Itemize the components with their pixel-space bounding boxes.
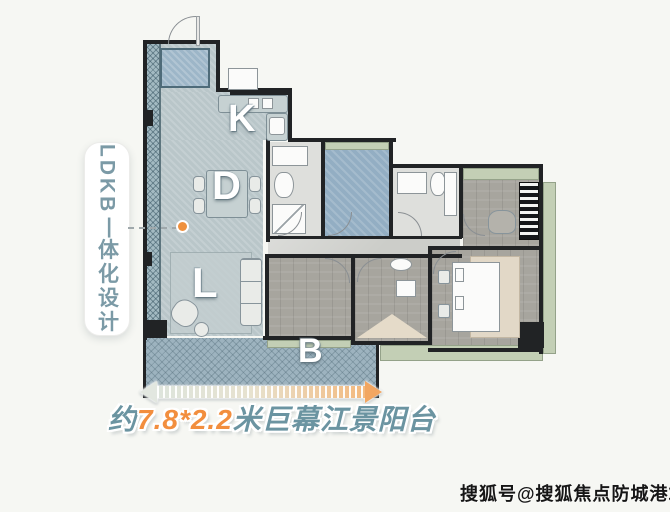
window-wall-strip	[147, 44, 161, 336]
wall-bedroom2-master	[428, 246, 432, 341]
bath2-shower	[444, 172, 457, 216]
wall-bath2-right-bedroom	[459, 164, 463, 238]
dimension-prefix: 约	[108, 404, 137, 435]
bedroom2-stool	[390, 258, 412, 271]
bath1-sink	[272, 146, 308, 166]
callout-dashed-line	[128, 227, 178, 229]
floor-plan-page: K D L B LDKB一体化设计 约7.8*2.2米巨幕江景阳台 搜狐号@搜狐…	[0, 0, 670, 512]
wall-hall-south	[266, 254, 462, 258]
balcony-label: B	[298, 334, 323, 368]
right-bedroom-sill	[463, 168, 539, 180]
kitchen-flue-box	[228, 68, 258, 90]
wall-bath2-top	[392, 164, 463, 168]
dining-chair-2	[193, 198, 205, 214]
pier-master-right	[518, 322, 544, 348]
side-callout-text: LDKB一体化设计	[97, 144, 118, 334]
wardrobe-grille	[519, 182, 539, 240]
wall-living-bedroom1	[265, 254, 269, 340]
dining-label: D	[212, 166, 241, 206]
balcony-dimension-text: 约7.8*2.2米巨幕江景阳台	[108, 398, 436, 438]
pier-left-2	[143, 252, 152, 266]
wall-master-bottom	[428, 348, 543, 352]
entry-door-arc	[168, 16, 196, 44]
dimension-suffix: 米巨幕江景阳台	[233, 404, 436, 435]
watermark-text: 搜狐号@搜狐焦点防城港站	[460, 480, 670, 506]
wall-blueroom-bath2	[389, 138, 393, 238]
master-pillow-1	[455, 268, 464, 282]
sofa	[240, 258, 262, 326]
arrow-band	[157, 386, 365, 398]
side-label-chinese: 体化设计	[96, 238, 119, 334]
wall-bath1-blueroom	[321, 138, 325, 238]
nightstand-2	[438, 304, 450, 318]
wall-entry-right	[216, 40, 220, 92]
entry-door-leaf	[196, 16, 200, 46]
wall-bedroom1-bedroom2	[351, 256, 355, 341]
dimension-value: 7.8*2.2	[137, 404, 233, 435]
pier-left-corner	[143, 320, 167, 338]
right-bedroom-chair	[488, 210, 516, 234]
blue-room-sill	[325, 142, 389, 150]
callout-dot	[178, 222, 187, 231]
right-planter-strip	[543, 182, 556, 354]
wall-ldk-bath-divider	[266, 138, 270, 242]
side-callout-pill: LDKB一体化设计	[84, 142, 130, 336]
kitchen-label: K	[228, 100, 255, 138]
wall-master-top	[428, 246, 543, 250]
dining-chair-1	[193, 176, 205, 192]
kitchen-sink	[269, 117, 285, 135]
bath2-sink	[397, 172, 427, 194]
wall-kitchen-right	[288, 88, 292, 142]
living-label: L	[192, 262, 218, 304]
pier-left-1	[143, 110, 153, 126]
coffee-table	[194, 322, 209, 337]
bath1-toilet	[274, 172, 294, 198]
dining-chair-3	[249, 176, 261, 192]
wall-bath-block-top	[288, 138, 396, 142]
stove-burner-right	[262, 98, 273, 109]
side-label-separator: 一	[95, 216, 119, 237]
wall-hall-north	[266, 236, 462, 239]
wall-bedroom2-bottom	[351, 341, 432, 345]
wall-right-bedroom-top	[459, 164, 543, 168]
dining-chair-4	[249, 198, 261, 214]
bedroom2-rug-triangle	[357, 314, 427, 338]
bedroom2-desk	[396, 280, 416, 297]
side-label-latin: LDKB	[96, 144, 119, 214]
master-pillow-2	[455, 296, 464, 310]
wall-plan-left	[143, 40, 147, 340]
entry-closet	[160, 48, 210, 88]
